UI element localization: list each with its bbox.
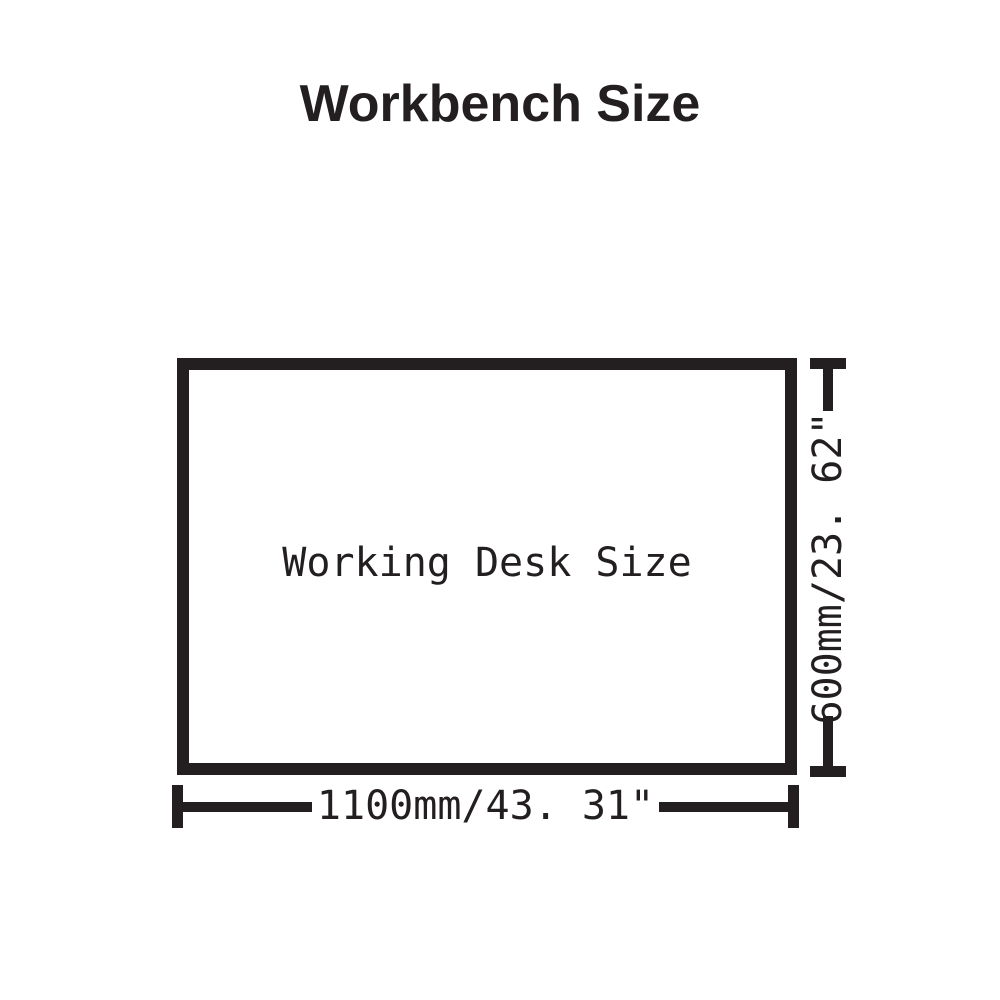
- width-dimension-line-left: [183, 802, 312, 812]
- width-dimension-cap-left: [172, 785, 183, 828]
- height-dimension-line-lower: [823, 716, 833, 766]
- height-dimension-cap-bottom: [810, 766, 846, 777]
- height-dimension: 600mm/23. 62": [806, 358, 850, 777]
- desk-label: Working Desk Size: [282, 540, 691, 586]
- height-dimension-line-upper: [823, 369, 833, 411]
- desk-outline-rectangle: Working Desk Size: [177, 358, 797, 775]
- width-dimension: 1100mm/43. 31": [172, 785, 799, 828]
- width-dimension-label: 1100mm/43. 31": [312, 783, 659, 829]
- height-dimension-label: 600mm/23. 62": [805, 411, 851, 724]
- diagram-title: Workbench Size: [0, 76, 1000, 133]
- workbench-size-diagram: Workbench Size Working Desk Size 600mm/2…: [0, 0, 1000, 1000]
- height-dimension-cap-top: [810, 358, 846, 369]
- width-dimension-cap-right: [788, 785, 799, 828]
- width-dimension-line-right: [659, 802, 788, 812]
